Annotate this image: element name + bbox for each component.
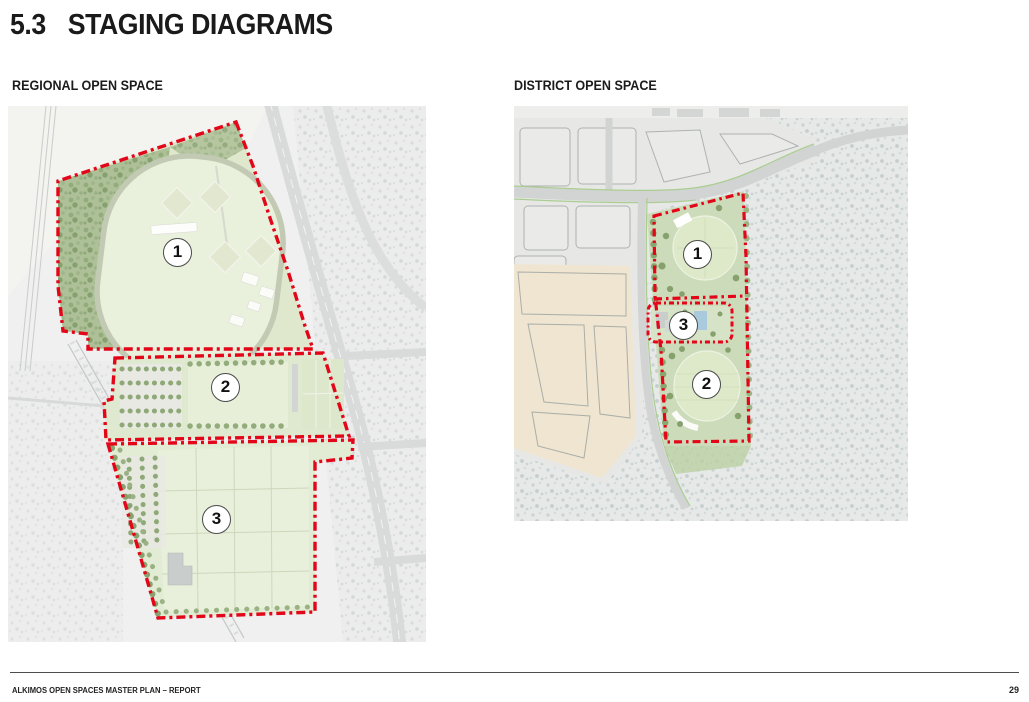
- district-open-space-map: 1 3 2: [514, 106, 908, 521]
- page-title: 5.3 STAGING DIAGRAMS: [10, 9, 333, 42]
- regional-open-space-heading: REGIONAL OPEN SPACE: [12, 78, 163, 93]
- district-stage-1-badge: 1: [683, 240, 712, 269]
- district-map-image: [514, 106, 908, 521]
- footer-page-number: 29: [1009, 685, 1019, 695]
- regional-map-image: [8, 106, 426, 642]
- footer-divider: [10, 672, 1019, 673]
- regional-stage-3-badge: 3: [202, 505, 231, 534]
- district-open-space-heading: DISTRICT OPEN SPACE: [514, 78, 657, 93]
- regional-stage-1-badge: 1: [163, 238, 192, 267]
- district-stage-2-badge: 2: [692, 370, 721, 399]
- footer-report-title: ALKIMOS OPEN SPACES MASTER PLAN – REPORT: [12, 686, 201, 695]
- section-number: 5.3: [10, 9, 46, 42]
- regional-open-space-map: 1 2 3: [8, 106, 426, 642]
- report-page: 5.3 STAGING DIAGRAMS REGIONAL OPEN SPACE…: [0, 0, 1029, 702]
- district-stage-3-badge: 3: [669, 311, 698, 340]
- section-title: STAGING DIAGRAMS: [68, 9, 333, 42]
- regional-stage-2-badge: 2: [211, 373, 240, 402]
